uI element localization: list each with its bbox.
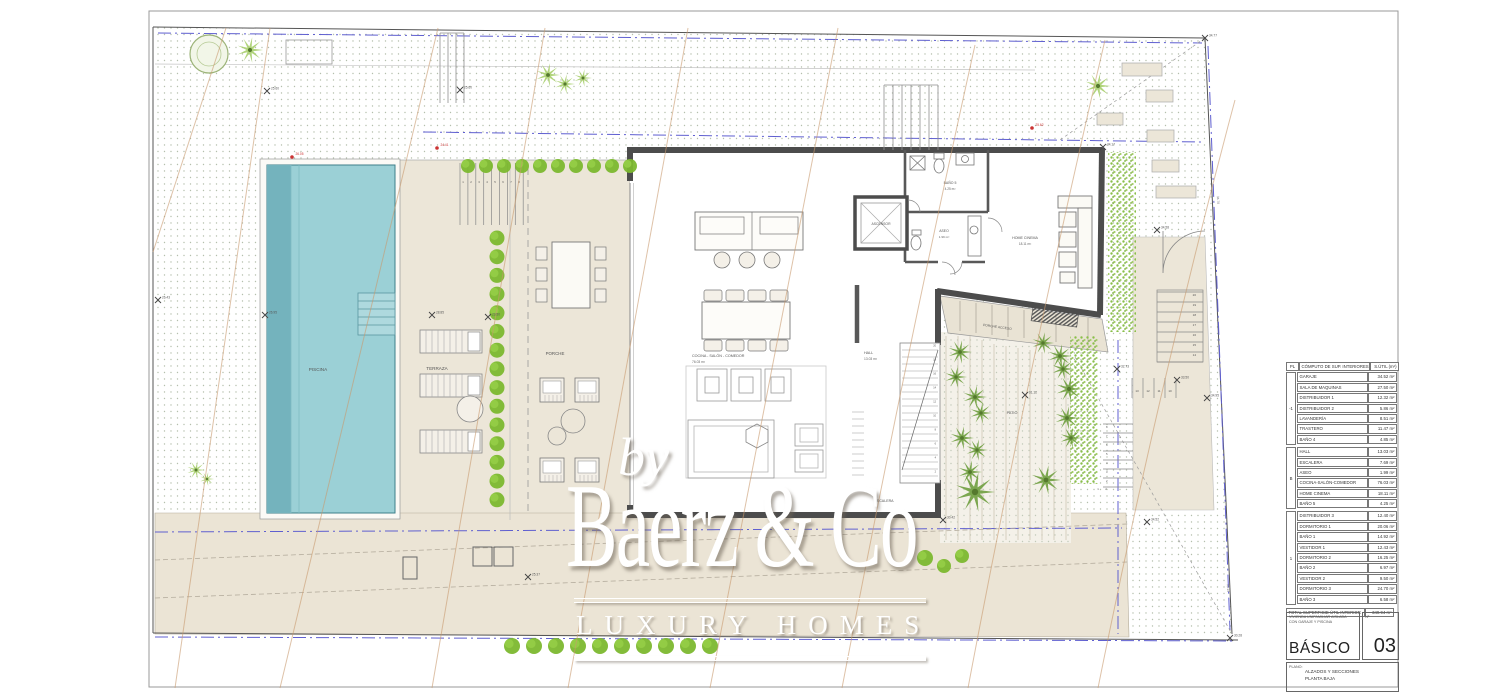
bush-icon (490, 231, 505, 246)
header-col-name: CÓMPUTO DE SUP. INTERIORES (1299, 362, 1370, 371)
room-name: TRASTERO (1297, 424, 1368, 433)
stair-number: 18 (1193, 313, 1197, 317)
ascensor-label: ASCENSOR (871, 222, 891, 226)
floor-rows: GARAJE34.52 m²SALA DE MAQUINAS27.50 m²DI… (1297, 372, 1398, 445)
kitchen-stools (714, 252, 780, 268)
bush-icon (490, 380, 505, 395)
bush-icon (490, 287, 505, 302)
table-row: BAÑO 44.85 m² (1297, 435, 1398, 444)
bush-icon (497, 159, 511, 173)
bush-icon (592, 638, 608, 654)
piscina-label: PISCINA (309, 367, 328, 372)
porche-label: PORCHE (546, 351, 565, 356)
terrace-table (457, 396, 483, 422)
table-header-row: PLCÓMPUTO DE SUP. INTERIORESS.ÚTIL (m²) (1286, 362, 1398, 371)
bush-icon (490, 455, 505, 470)
bush-icon (490, 399, 505, 414)
table-row: ASEO1.99 m² (1297, 468, 1398, 477)
kitchen-island (695, 212, 803, 250)
porch-armchair (575, 378, 599, 402)
survey-mark-value: 34.17 (1107, 143, 1115, 147)
bush-icon (479, 159, 493, 173)
room-name: VESTIDOR 2 (1297, 574, 1368, 583)
table-floor-group: BHALL13.03 m²ESCALERA7.69 m²ASEO1.99 m²C… (1286, 447, 1398, 509)
room-area: 6.58 m² (1368, 595, 1397, 604)
room-name: HOME CINEMA (1297, 489, 1368, 498)
room-name: ASEO (1297, 468, 1368, 477)
title-block-number: Nº 03 (1362, 612, 1399, 660)
title-block-plano: PLANO: ALZADOS Y SECCIONES PLANTA BAJA (1286, 662, 1399, 692)
bush-icon (614, 638, 630, 654)
stair-number: 16 (1193, 333, 1197, 337)
bush-icon (490, 418, 505, 433)
bush-icon (490, 492, 505, 507)
room-area: 5.86 m² (1368, 404, 1397, 413)
cocina-label: COCINA - SALÓN - COMEDOR (692, 353, 745, 358)
stair-number: 20 (1193, 293, 1197, 297)
room-area: 11.47 m² (1368, 424, 1397, 433)
room-area: 12.32 m² (1368, 393, 1397, 402)
terraza-label: TERRAZA (426, 366, 448, 371)
table-row: SALA DE MAQUINAS27.50 m² (1297, 383, 1398, 392)
bush-icon (490, 361, 505, 376)
survey-mark-value: 34.58 (1161, 226, 1169, 230)
room-area: 13.03 m² (1368, 447, 1397, 456)
room-name: DORMITORIO 2 (1297, 553, 1368, 562)
table-row: GARAJE34.52 m² (1297, 372, 1398, 381)
room-area: 6.97 m² (1368, 563, 1397, 572)
room-area: 34.52 m² (1368, 372, 1397, 381)
sun-lounger (420, 374, 482, 397)
survey-mark-value: 33.50 (1181, 376, 1189, 380)
table-row: HOME CINEMA18.11 m² (1297, 489, 1398, 498)
room-name: BAÑO 3 (1297, 595, 1368, 604)
survey-mark-value: 32.73 (1121, 365, 1129, 369)
room-area: 7.69 m² (1368, 458, 1397, 467)
bush-icon (937, 559, 951, 573)
table-row: BAÑO 36.58 m² (1297, 595, 1398, 604)
room-name: BAÑO 1 (1297, 532, 1368, 541)
survey-mark-value: 34.95 (1211, 394, 1219, 398)
room-area: 20.06 m² (1368, 522, 1397, 531)
room-name: HALL (1297, 447, 1368, 456)
porch-armchair (540, 378, 564, 402)
cocina-area: 76.03 m² (692, 360, 706, 364)
room-name: LAVANDERÍA (1297, 414, 1368, 423)
floor-label: 1 (1286, 511, 1296, 605)
bush-icon (570, 638, 586, 654)
number-label: Nº (1365, 615, 1396, 619)
room-name: DISTRIBUIDOR 3 (1297, 511, 1368, 520)
stair-number: 17 (1193, 323, 1197, 327)
header-col-pl: PL (1286, 362, 1299, 371)
shrub-strip (1108, 152, 1136, 332)
table-row: ESCALERA7.69 m² (1297, 458, 1398, 467)
table-row: DISTRIBUIDOR 112.32 m² (1297, 393, 1398, 402)
porch-table (552, 242, 590, 308)
bush-icon (605, 159, 619, 173)
area-table: PLCÓMPUTO DE SUP. INTERIORESS.ÚTIL (m²)-… (1286, 362, 1398, 618)
table-row: DISTRIBUIDOR 312.40 m² (1297, 511, 1398, 520)
bush-icon (623, 159, 637, 173)
table-row: DISTRIBUIDOR 25.86 m² (1297, 404, 1398, 413)
bush-icon (461, 159, 475, 173)
project-line2: CON GARAJE Y PISCINA (1289, 620, 1357, 625)
room-name: DISTRIBUIDOR 1 (1297, 393, 1368, 402)
floor-rows: DISTRIBUIDOR 312.40 m²DORMITORIO 120.06 … (1297, 511, 1398, 605)
table-row: HALL13.03 m² (1297, 447, 1398, 456)
home-cinema-area: 18.11 m² (1019, 242, 1031, 246)
bush-icon (551, 159, 565, 173)
survey-mark-value: 31.12 (1029, 391, 1037, 395)
table-row: COCINA-SALÓN-COMEDOR76.03 m² (1297, 478, 1398, 487)
survey-mark-value: 26.95 (269, 311, 277, 315)
title-block: VIVIENDA UNIFAMILIAR AISLADA CON GARAJE … (1286, 612, 1399, 692)
bush-icon (490, 343, 505, 358)
bush-icon (587, 159, 601, 173)
room-area: 18.11 m² (1368, 489, 1397, 498)
room-area: 27.50 m² (1368, 383, 1397, 392)
shrub-strip (1070, 336, 1098, 484)
terrace: TERRAZA (420, 330, 483, 453)
hall-label: HALL (864, 351, 873, 355)
room-name: DORMITORIO 1 (1297, 522, 1368, 531)
room-name: DISTRIBUIDOR 2 (1297, 404, 1368, 413)
drawing-sheet: PISCINA TERRAZA PORCHE (0, 0, 1500, 692)
room-area: 16.25 m² (1368, 553, 1397, 562)
bush-icon (955, 549, 969, 563)
stair-number: 19 (1193, 303, 1197, 307)
stair-number: 10 (1168, 389, 1172, 393)
bush-icon (490, 249, 505, 264)
table-floor-group: 1DISTRIBUIDOR 312.40 m²DORMITORIO 120.06… (1286, 511, 1398, 605)
room-area: 12.43 m² (1368, 543, 1397, 552)
survey-mark-value: 30.28 (1234, 634, 1242, 638)
room-name: BAÑO 5 (1297, 499, 1368, 508)
table-row: BAÑO 114.92 m² (1297, 532, 1398, 541)
table-row: LAVANDERÍA8.51 m² (1297, 414, 1398, 423)
bush-icon (680, 638, 696, 654)
bano5-area: 4.25 m² (945, 187, 956, 191)
room-name: ESCALERA (1297, 458, 1368, 467)
porch-armchair (575, 458, 599, 482)
bush-icon (490, 474, 505, 489)
survey-mark-value: 26.43 (162, 296, 170, 300)
bush-icon (526, 638, 542, 654)
sun-lounger (420, 330, 482, 353)
table-row: BAÑO 54.25 m² (1297, 499, 1398, 508)
room-name: SALA DE MAQUINAS (1297, 383, 1368, 392)
bush-icon (917, 550, 933, 566)
survey-mark-value: 34.77 (1209, 34, 1217, 38)
survey-mark-value: 25.60 (464, 86, 472, 90)
bush-icon (548, 638, 564, 654)
floor-label: -1 (1286, 372, 1296, 445)
table-row: BAÑO 26.97 m² (1297, 563, 1398, 572)
room-name: GARAJE (1297, 372, 1368, 381)
room-area: 9.50 m² (1368, 574, 1397, 583)
room-name: DORMITORIO 3 (1297, 584, 1368, 593)
room-area: 4.25 m² (1368, 499, 1397, 508)
room-name: BAÑO 2 (1297, 563, 1368, 572)
room-area: 76.03 m² (1368, 478, 1397, 487)
bush-icon (490, 436, 505, 451)
floor-label: B (1286, 447, 1296, 509)
pool: PISCINA (260, 159, 400, 519)
floor-rows: HALL13.03 m²ESCALERA7.69 m²ASEO1.99 m²CO… (1297, 447, 1398, 509)
patio-label: PATIO (1007, 411, 1018, 415)
table-row: TRASTERO11.47 m² (1297, 424, 1398, 433)
floor-plan-drawing: PISCINA TERRAZA PORCHE (0, 0, 1500, 692)
plano-line2: PLANTA BAJA (1305, 676, 1396, 683)
header-col-area: S.ÚTIL (m²) (1370, 362, 1399, 371)
red-benchmark-value: 26.05 (296, 152, 304, 156)
red-benchmark-value: 24.41 (441, 143, 449, 147)
table-row: VESTIDOR 112.43 m² (1297, 543, 1398, 552)
stair-number: 14 (1193, 353, 1197, 357)
elevator: ASCENSOR (855, 197, 907, 249)
bush-icon (504, 638, 520, 654)
aseo-label: ASEO (939, 229, 949, 233)
home-cinema-label: HOME CINEMA (1012, 236, 1038, 240)
survey-mark-value: 30.42 (947, 516, 955, 520)
pool-steps (358, 293, 395, 335)
stair-number: 13 (1135, 389, 1139, 393)
room-area: 1.99 m² (1368, 468, 1397, 477)
escalera-label: ESCALERA (874, 499, 894, 503)
bush-icon (569, 159, 583, 173)
stair-number: 11 (1157, 389, 1160, 393)
survey-mark-value: 34.52 (1151, 518, 1159, 522)
red-benchmark-value: 25.62 (1036, 123, 1044, 127)
room-name: VESTIDOR 1 (1297, 543, 1368, 552)
porch-armchair (540, 458, 564, 482)
survey-mark-value: 29.50 (492, 313, 500, 317)
aseo-area: 1.99 m² (939, 235, 950, 239)
bush-icon (702, 638, 718, 654)
dimension-label: 30.14 (1226, 584, 1230, 592)
bush-icon (533, 159, 547, 173)
room-name: BAÑO 4 (1297, 435, 1368, 444)
room-area: 24.70 m² (1368, 584, 1397, 593)
dimension-label: 34.78 (1216, 196, 1220, 204)
bush-icon (658, 638, 674, 654)
hall-area: 13.03 m² (864, 357, 878, 361)
room-name: COCINA-SALÓN-COMEDOR (1297, 478, 1368, 487)
survey-mark-value: 28.85 (436, 311, 444, 315)
room-area: 8.51 m² (1368, 414, 1397, 423)
room-area: 14.92 m² (1368, 532, 1397, 541)
table-row: DORMITORIO 324.70 m² (1297, 584, 1398, 593)
table-row: VESTIDOR 29.50 m² (1297, 574, 1398, 583)
table-floor-group: -1GARAJE34.52 m²SALA DE MAQUINAS27.50 m²… (1286, 372, 1398, 445)
sheet-number: 03 (1374, 635, 1396, 658)
table-row: DORMITORIO 216.25 m² (1297, 553, 1398, 562)
plano-line1: ALZADOS Y SECCIONES (1305, 669, 1396, 676)
stair-number: 15 (1193, 343, 1197, 347)
table-row: DORMITORIO 120.06 m² (1297, 522, 1398, 531)
bush-icon (636, 638, 652, 654)
survey-mark-value: 25.37 (532, 573, 540, 577)
phase-label: BÁSICO (1289, 640, 1351, 658)
stair-number: 12 (1146, 389, 1150, 393)
room-area: 4.85 m² (1368, 435, 1397, 444)
survey-mark-value: 25.60 (271, 87, 279, 91)
title-block-project: VIVIENDA UNIFAMILIAR AISLADA CON GARAJE … (1286, 612, 1360, 660)
room-area: 12.40 m² (1368, 511, 1397, 520)
